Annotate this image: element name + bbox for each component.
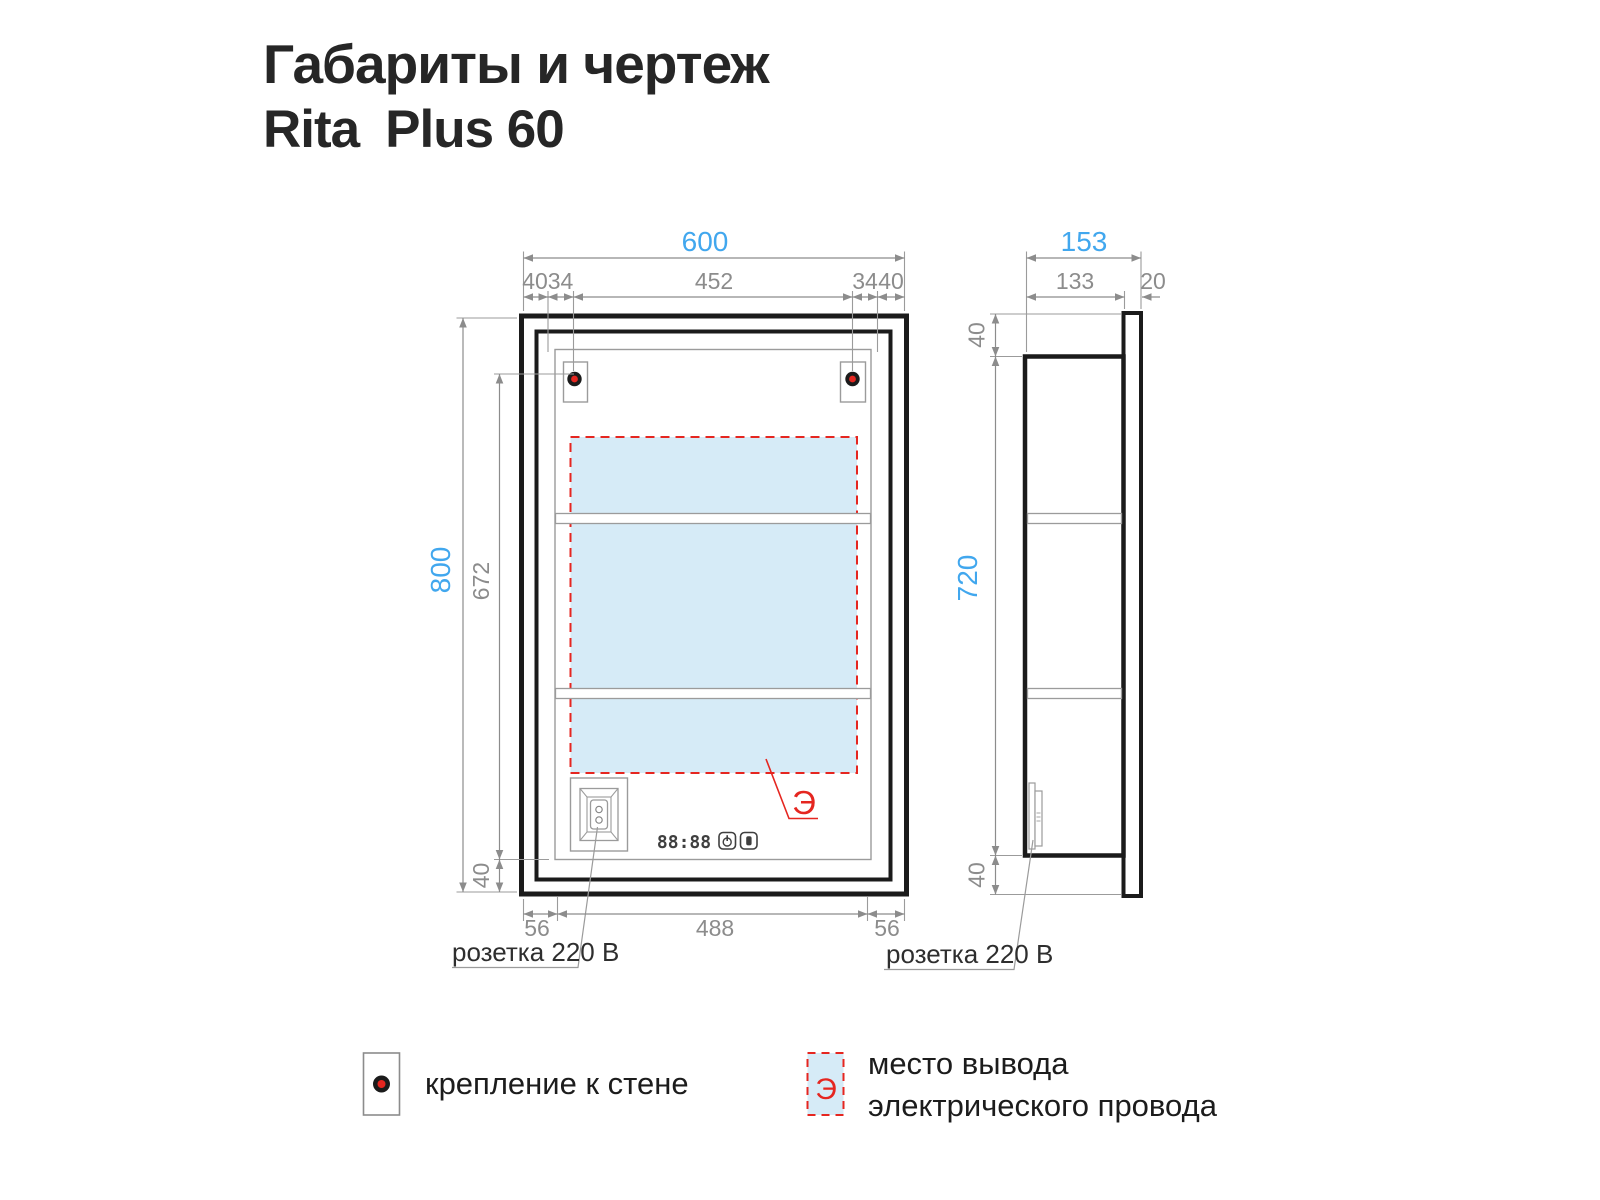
shelf-upper <box>556 514 871 524</box>
mount-point-right-center <box>849 376 856 383</box>
dim-depth-body: 133 <box>1056 268 1094 294</box>
light-symbol-bar <box>746 836 751 845</box>
legend-mount-label: крепление к стене <box>425 1066 689 1101</box>
front-view: 88:88 Э розетка 220 В <box>425 226 907 968</box>
socket-front-face <box>591 800 608 829</box>
socket-front-label: розетка 220 В <box>452 937 619 967</box>
dim-top-offset-side: 40 <box>964 322 990 348</box>
mount-point-left-center <box>571 376 578 383</box>
dim-height-total: 800 <box>425 547 456 594</box>
side-cabinet-body-outline <box>1025 357 1124 856</box>
dim-top-2: 34 <box>548 268 574 294</box>
side-view: 153 133 20 40 720 40 розетка 220 В <box>884 226 1166 970</box>
legend-mount-dot-center <box>378 1080 386 1088</box>
socket-side-label: розетка 220 В <box>886 939 1053 969</box>
dim-bottom-offset-front: 40 <box>468 863 494 889</box>
dim-bottom-1: 56 <box>524 915 550 941</box>
dim-top-5: 40 <box>878 268 904 294</box>
electric-mark-label: Э <box>792 784 816 821</box>
legend-electric-label-line1: место вывода <box>868 1046 1069 1081</box>
socket-front <box>571 778 628 851</box>
socket-side-plate <box>1029 783 1035 849</box>
dim-bottom-offset-side: 40 <box>964 862 990 888</box>
side-shelf-upper <box>1028 514 1122 524</box>
legend-electric-label-line2: электрического провода <box>868 1088 1218 1123</box>
dim-bottom-3: 56 <box>874 915 900 941</box>
side-mirror-door-outline <box>1124 313 1142 896</box>
dim-top-1: 40 <box>522 268 548 294</box>
dim-top-3: 452 <box>695 268 733 294</box>
dim-door-thickness: 20 <box>1140 268 1166 294</box>
dim-width-total: 600 <box>682 226 729 257</box>
electric-output-zone <box>571 437 858 773</box>
socket-side <box>1029 783 1042 849</box>
dim-mount-height: 672 <box>468 562 494 600</box>
dim-bottom-2: 488 <box>696 915 734 941</box>
socket-pin-hole-bottom <box>596 817 602 823</box>
legend: крепление к стене Э место вывода электри… <box>364 1046 1218 1123</box>
shelf-lower <box>556 689 871 699</box>
legend-electric-symbol: Э <box>815 1073 837 1106</box>
drawing-page: Габариты и чертеж Rita Plus 60 <box>0 0 1600 1200</box>
technical-drawing: 88:88 Э розетка 220 В <box>0 0 1600 1200</box>
dim-height-body: 720 <box>952 555 983 602</box>
side-shelf-lower <box>1028 689 1122 699</box>
socket-side-body <box>1035 791 1042 846</box>
dim-depth-total: 153 <box>1061 226 1108 257</box>
clock-display: 88:88 <box>657 832 711 853</box>
socket-pin-hole-top <box>596 806 602 812</box>
dim-top-4: 34 <box>852 268 878 294</box>
